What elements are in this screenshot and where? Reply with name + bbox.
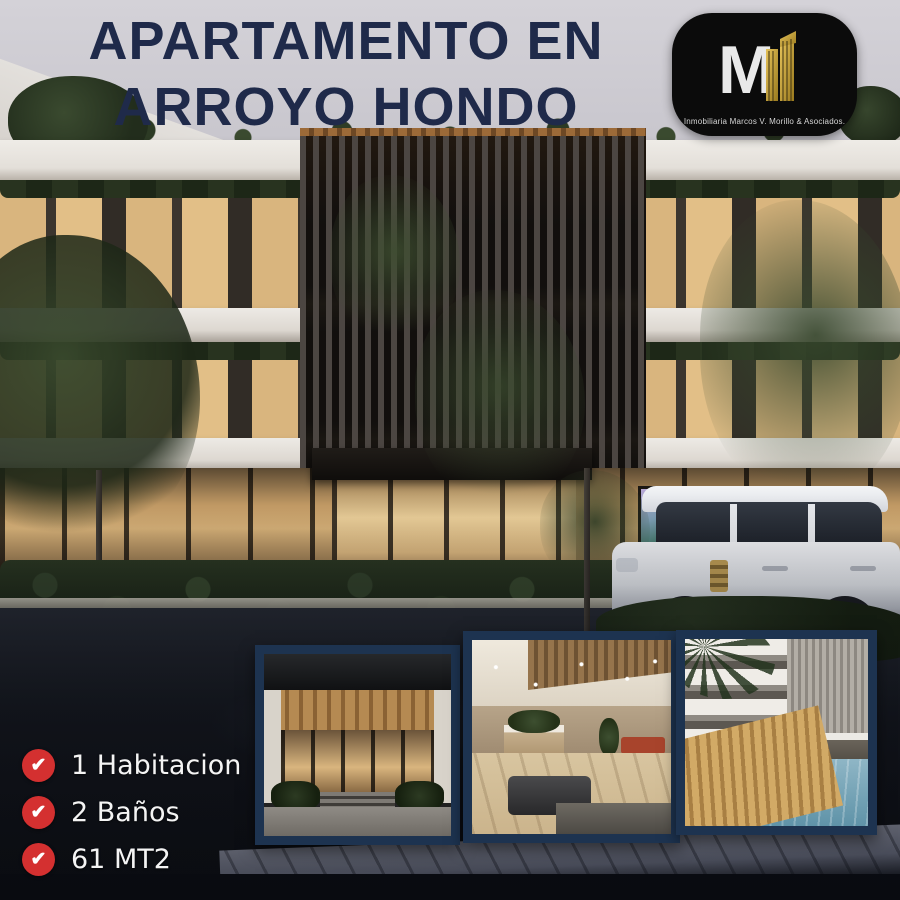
- feature-area: ✔ 61 MT2: [22, 842, 241, 876]
- feature-label: 2 Baños: [71, 797, 180, 828]
- ottoman: [556, 803, 671, 834]
- entrance-canopy-dark: [264, 654, 451, 690]
- agency-logo: M Inmobiliaria Marcos V. Morillo & Asoci…: [672, 13, 857, 136]
- logo-monogram-icon: M: [720, 27, 810, 103]
- street-tree-trunk: [584, 468, 590, 650]
- lobby-plants: [508, 710, 560, 733]
- entrance-photo-art: [264, 654, 451, 836]
- lobby-plant: [599, 718, 619, 757]
- check-icon: ✔: [22, 843, 55, 876]
- suv-door-handle: [850, 566, 876, 571]
- feature-bedrooms: ✔ 1 Habitacion: [22, 748, 241, 782]
- entrance-wood-ceiling: [275, 690, 440, 730]
- real-estate-flyer: APARTAMENTO EN ARROYO HONDO M Inmobiliar…: [0, 0, 900, 900]
- entrance-walkway: [264, 807, 451, 836]
- pool-photo-art: [685, 639, 868, 826]
- feature-label: 1 Habitacion: [71, 750, 241, 781]
- pool-photo: [676, 630, 877, 835]
- suv-headlight: [616, 558, 638, 572]
- feature-bathrooms: ✔ 2 Baños: [22, 795, 241, 829]
- check-icon: ✔: [22, 796, 55, 829]
- feature-list: ✔ 1 Habitacion ✔ 2 Baños ✔ 61 MT2: [22, 748, 241, 889]
- page-title: APARTAMENTO EN ARROYO HONDO: [40, 8, 652, 140]
- check-icon: ✔: [22, 749, 55, 782]
- feature-label: 61 MT2: [71, 844, 171, 875]
- entrance-photo: [255, 645, 460, 845]
- suv-gold-vent: [710, 560, 728, 592]
- logo-caption: Inmobiliaria Marcos V. Morillo & Asociad…: [672, 117, 857, 126]
- suv-door-handle: [762, 566, 788, 571]
- tree-foliage: [700, 200, 900, 500]
- lobby-lights: [472, 644, 671, 702]
- title-line-1: APARTAMENTO EN: [40, 8, 652, 74]
- title-line-2: ARROYO HONDO: [40, 74, 652, 140]
- lobby-photo: [463, 631, 680, 843]
- lobby-photo-art: [472, 640, 671, 834]
